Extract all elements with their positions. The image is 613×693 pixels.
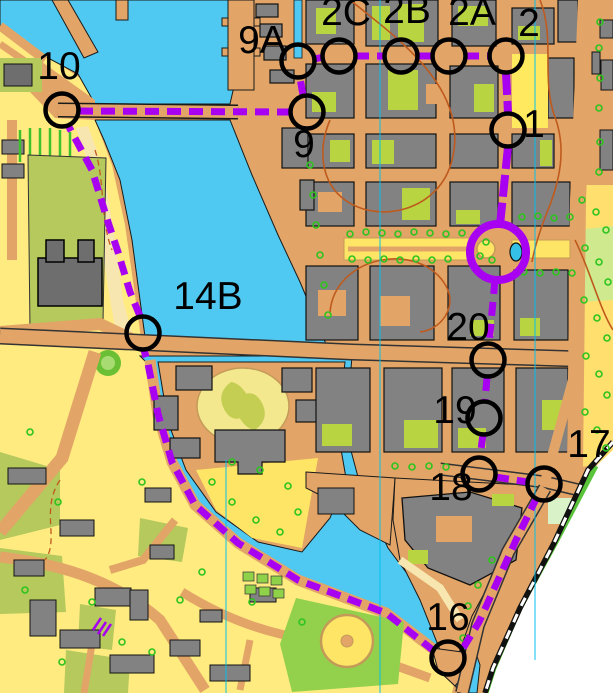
control-label-2B: 2B — [383, 0, 431, 32]
boulevard-gardens — [344, 238, 570, 261]
control-label-10: 10 — [37, 45, 80, 88]
control-label-9A: 9A — [238, 19, 286, 62]
course-leg-2-1 — [506, 73, 508, 113]
control-label-1: 1 — [523, 103, 545, 146]
control-label-2: 2 — [518, 2, 540, 45]
control-label-9: 9 — [293, 123, 315, 166]
control-label-14B: 14B — [173, 275, 242, 318]
map-canvas: 122A2B2C9A91014B1617181920 — [0, 0, 613, 693]
orienteering-map: 122A2B2C9A91014B1617181920 — [0, 0, 613, 693]
control-label-18: 18 — [429, 466, 472, 509]
control-label-16: 16 — [426, 596, 469, 639]
control-label-2A: 2A — [448, 0, 496, 34]
control-label-2C: 2C — [321, 0, 371, 34]
canal — [294, 0, 302, 58]
control-label-19: 19 — [433, 389, 476, 432]
control-label-20: 20 — [446, 306, 489, 349]
control-label-17: 17 — [567, 423, 610, 466]
